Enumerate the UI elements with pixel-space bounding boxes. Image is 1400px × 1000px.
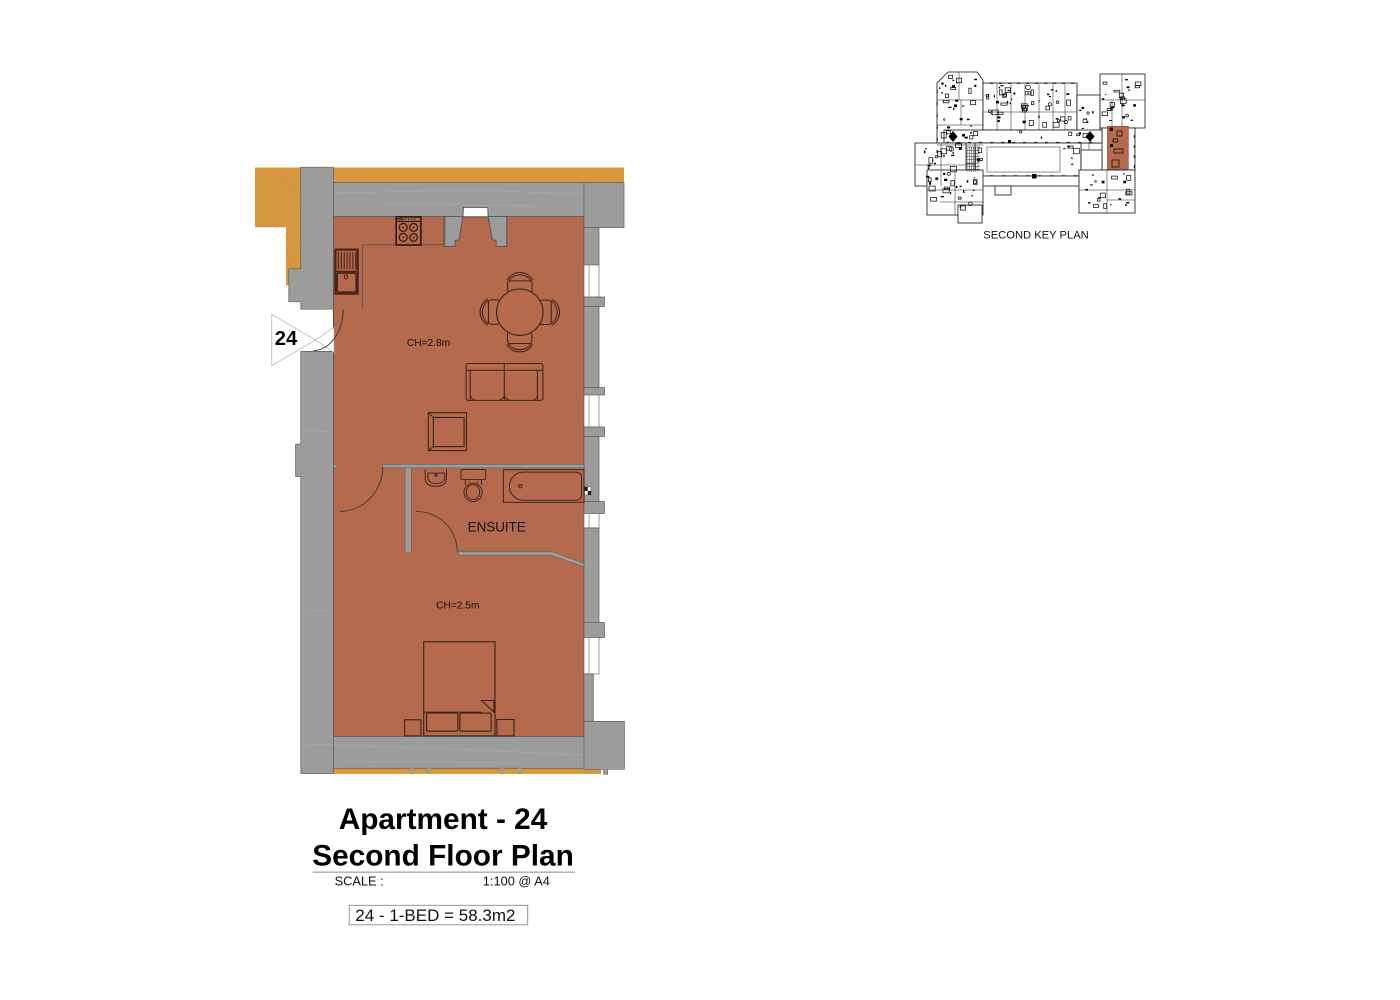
svg-text:SCALE :: SCALE : [335,874,384,889]
svg-text:24: 24 [275,328,298,350]
svg-text:24 - 1-BED = 58.3m2: 24 - 1-BED = 58.3m2 [355,906,515,925]
svg-text:CH=2.5m: CH=2.5m [436,601,479,612]
svg-text:1:100 @ A4: 1:100 @ A4 [483,874,550,889]
svg-text:SECOND KEY PLAN: SECOND KEY PLAN [983,230,1089,242]
svg-text:CH=2.8m: CH=2.8m [407,338,450,349]
svg-text:ENSUITE: ENSUITE [468,519,526,534]
svg-text:Second Floor Plan: Second Floor Plan [312,839,574,872]
svg-text:Apartment - 24: Apartment - 24 [339,803,548,836]
